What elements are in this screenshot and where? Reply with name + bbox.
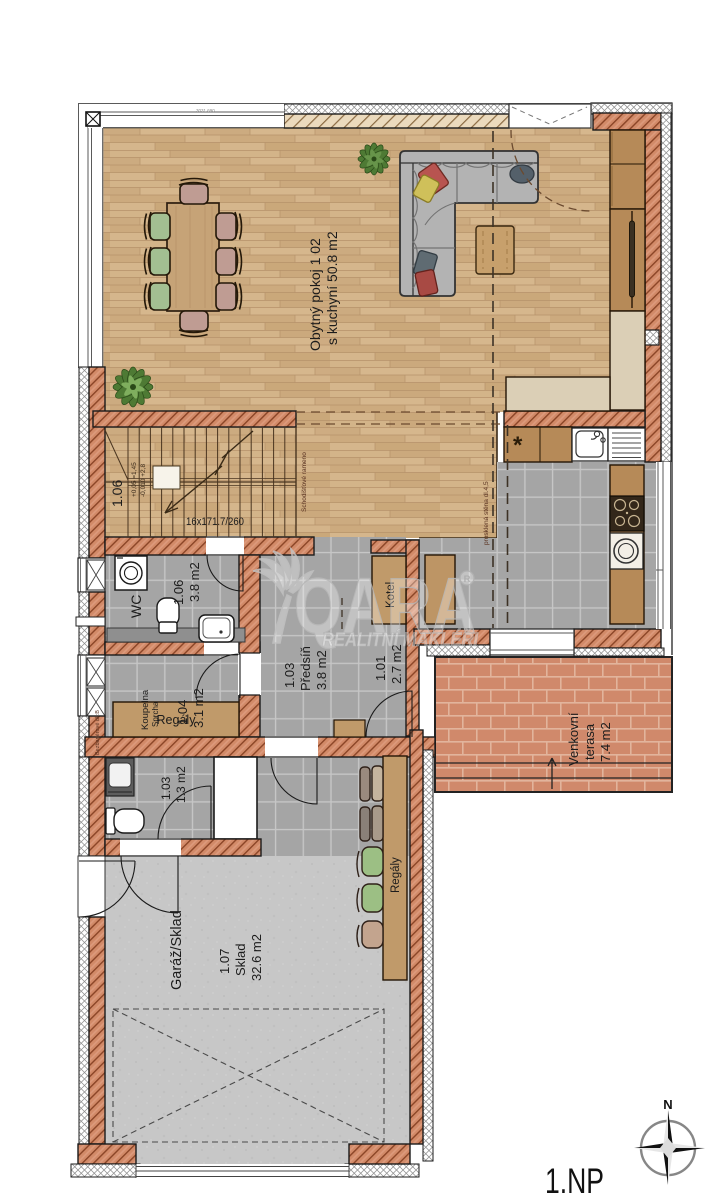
svg-text:1.3 m2: 1.3 m2 [174, 766, 188, 803]
svg-text:1.NP: 1.NP [545, 1162, 604, 1200]
svg-text:1.04: 1.04 [175, 700, 190, 725]
svg-text:-0,010 +2,8: -0,010 +2,8 [140, 464, 147, 497]
svg-text:Koupelna: Koupelna [140, 689, 151, 730]
svg-text:Regály: Regály [390, 857, 402, 893]
svg-text:1.07: 1.07 [217, 949, 232, 974]
svg-text:Předsíň: Předsíň [298, 646, 313, 691]
svg-text:R: R [464, 574, 471, 585]
svg-text:WC: WC [128, 595, 144, 618]
svg-text:16x171.7/260: 16x171.7/260 [186, 516, 244, 528]
svg-text:+0,05 =1,45: +0,05 =1,45 [131, 462, 138, 497]
svg-text:Garáž/Sklad: Garáž/Sklad [169, 910, 185, 990]
svg-text:1.06: 1.06 [109, 480, 125, 507]
svg-text:Venkovní: Venkovní [566, 712, 581, 766]
svg-text:3.1 m2: 3.1 m2 [191, 688, 206, 728]
svg-text:3.8 m2: 3.8 m2 [314, 650, 329, 690]
svg-text:32.6 m2: 32.6 m2 [249, 934, 264, 981]
svg-text:7.4 m2: 7.4 m2 [598, 722, 613, 762]
svg-text:Sklad: Sklad [233, 943, 248, 976]
svg-text:*: * [513, 432, 523, 459]
svg-text:Schodišťové rameno: Schodišťové rameno [301, 452, 308, 512]
svg-text:3.8 m2: 3.8 m2 [187, 562, 202, 602]
svg-text:1.03: 1.03 [159, 776, 173, 800]
svg-text:1.06: 1.06 [171, 580, 186, 605]
svg-text:prosklená stěna dl.4,5: prosklená stěna dl.4,5 [483, 481, 490, 545]
svg-text:N: N [663, 1097, 672, 1112]
svg-text:Obytný pokoj 1 02: Obytný pokoj 1 02 [307, 238, 323, 351]
svg-text:1.03: 1.03 [282, 663, 297, 688]
svg-text:3031 690: 3031 690 [196, 108, 215, 113]
svg-text:Bezbariérové dl.:B: Bezbariérové dl.:B [95, 710, 101, 755]
svg-text:REALITNÍ MAKLÉŘI: REALITNÍ MAKLÉŘI [322, 629, 479, 651]
svg-text:Sprcha: Sprcha [151, 701, 160, 727]
svg-text:1.01: 1.01 [373, 656, 388, 681]
svg-text:s kuchyní 50.8 m2: s kuchyní 50.8 m2 [324, 231, 340, 345]
svg-text:terasa: terasa [582, 723, 597, 760]
